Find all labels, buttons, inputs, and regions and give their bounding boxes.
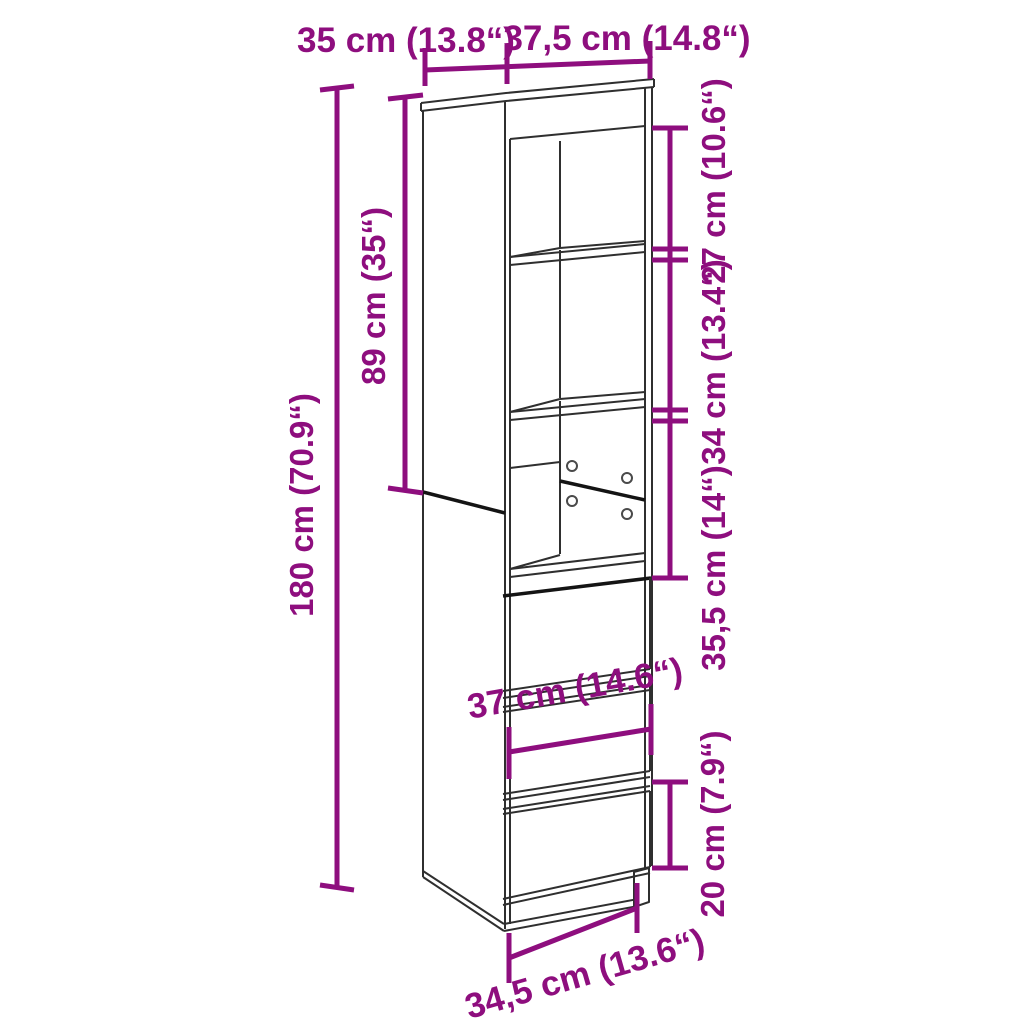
shelf-pin-hole	[622, 509, 632, 519]
dim-label-lower-opening: 35,5 cm (14“)	[695, 465, 732, 670]
dimension-labels: 35 cm (13.8“) 37,5 cm (14.8“) 27 cm (10.…	[283, 19, 751, 1024]
shelf-1	[510, 241, 645, 265]
base-plinth	[423, 868, 649, 931]
dim-drawer-height-lines	[652, 782, 688, 868]
shelf-2	[510, 392, 645, 420]
dim-label-total-height: 180 cm (70.9“)	[283, 393, 320, 617]
dim-label-top-opening: 27 cm (10.6“)	[695, 78, 732, 283]
dim-label-depth: 35 cm (13.8“)	[297, 21, 515, 60]
lower-compartment	[423, 461, 645, 577]
dim-right-stack-lines	[652, 128, 688, 578]
dimension-diagram: 35 cm (13.8“) 37,5 cm (14.8“) 27 cm (10.…	[0, 0, 1024, 1024]
shelf-pin-hole	[622, 473, 632, 483]
top-panel	[421, 79, 654, 111]
shelf-pin-hole	[567, 461, 577, 471]
dim-total-height-lines	[320, 86, 354, 890]
dim-label-base-width: 34,5 cm (13.6“)	[461, 921, 709, 1024]
drawer-3	[503, 786, 650, 905]
dim-upper-height-lines	[388, 95, 423, 493]
dim-label-middle-opening: 34 cm (13.4“)	[695, 259, 732, 464]
cabinet-line-art	[421, 79, 654, 931]
dim-label-width: 37,5 cm (14.8“)	[503, 19, 750, 58]
dim-label-drawer-height: 20 cm (7.9“)	[694, 730, 731, 917]
cabinet-dimension-drawing: 35 cm (13.8“) 37,5 cm (14.8“) 27 cm (10.…	[0, 0, 1024, 1024]
dim-label-upper-height: 89 cm (35“)	[355, 207, 392, 385]
shelf-pin-hole	[567, 496, 577, 506]
